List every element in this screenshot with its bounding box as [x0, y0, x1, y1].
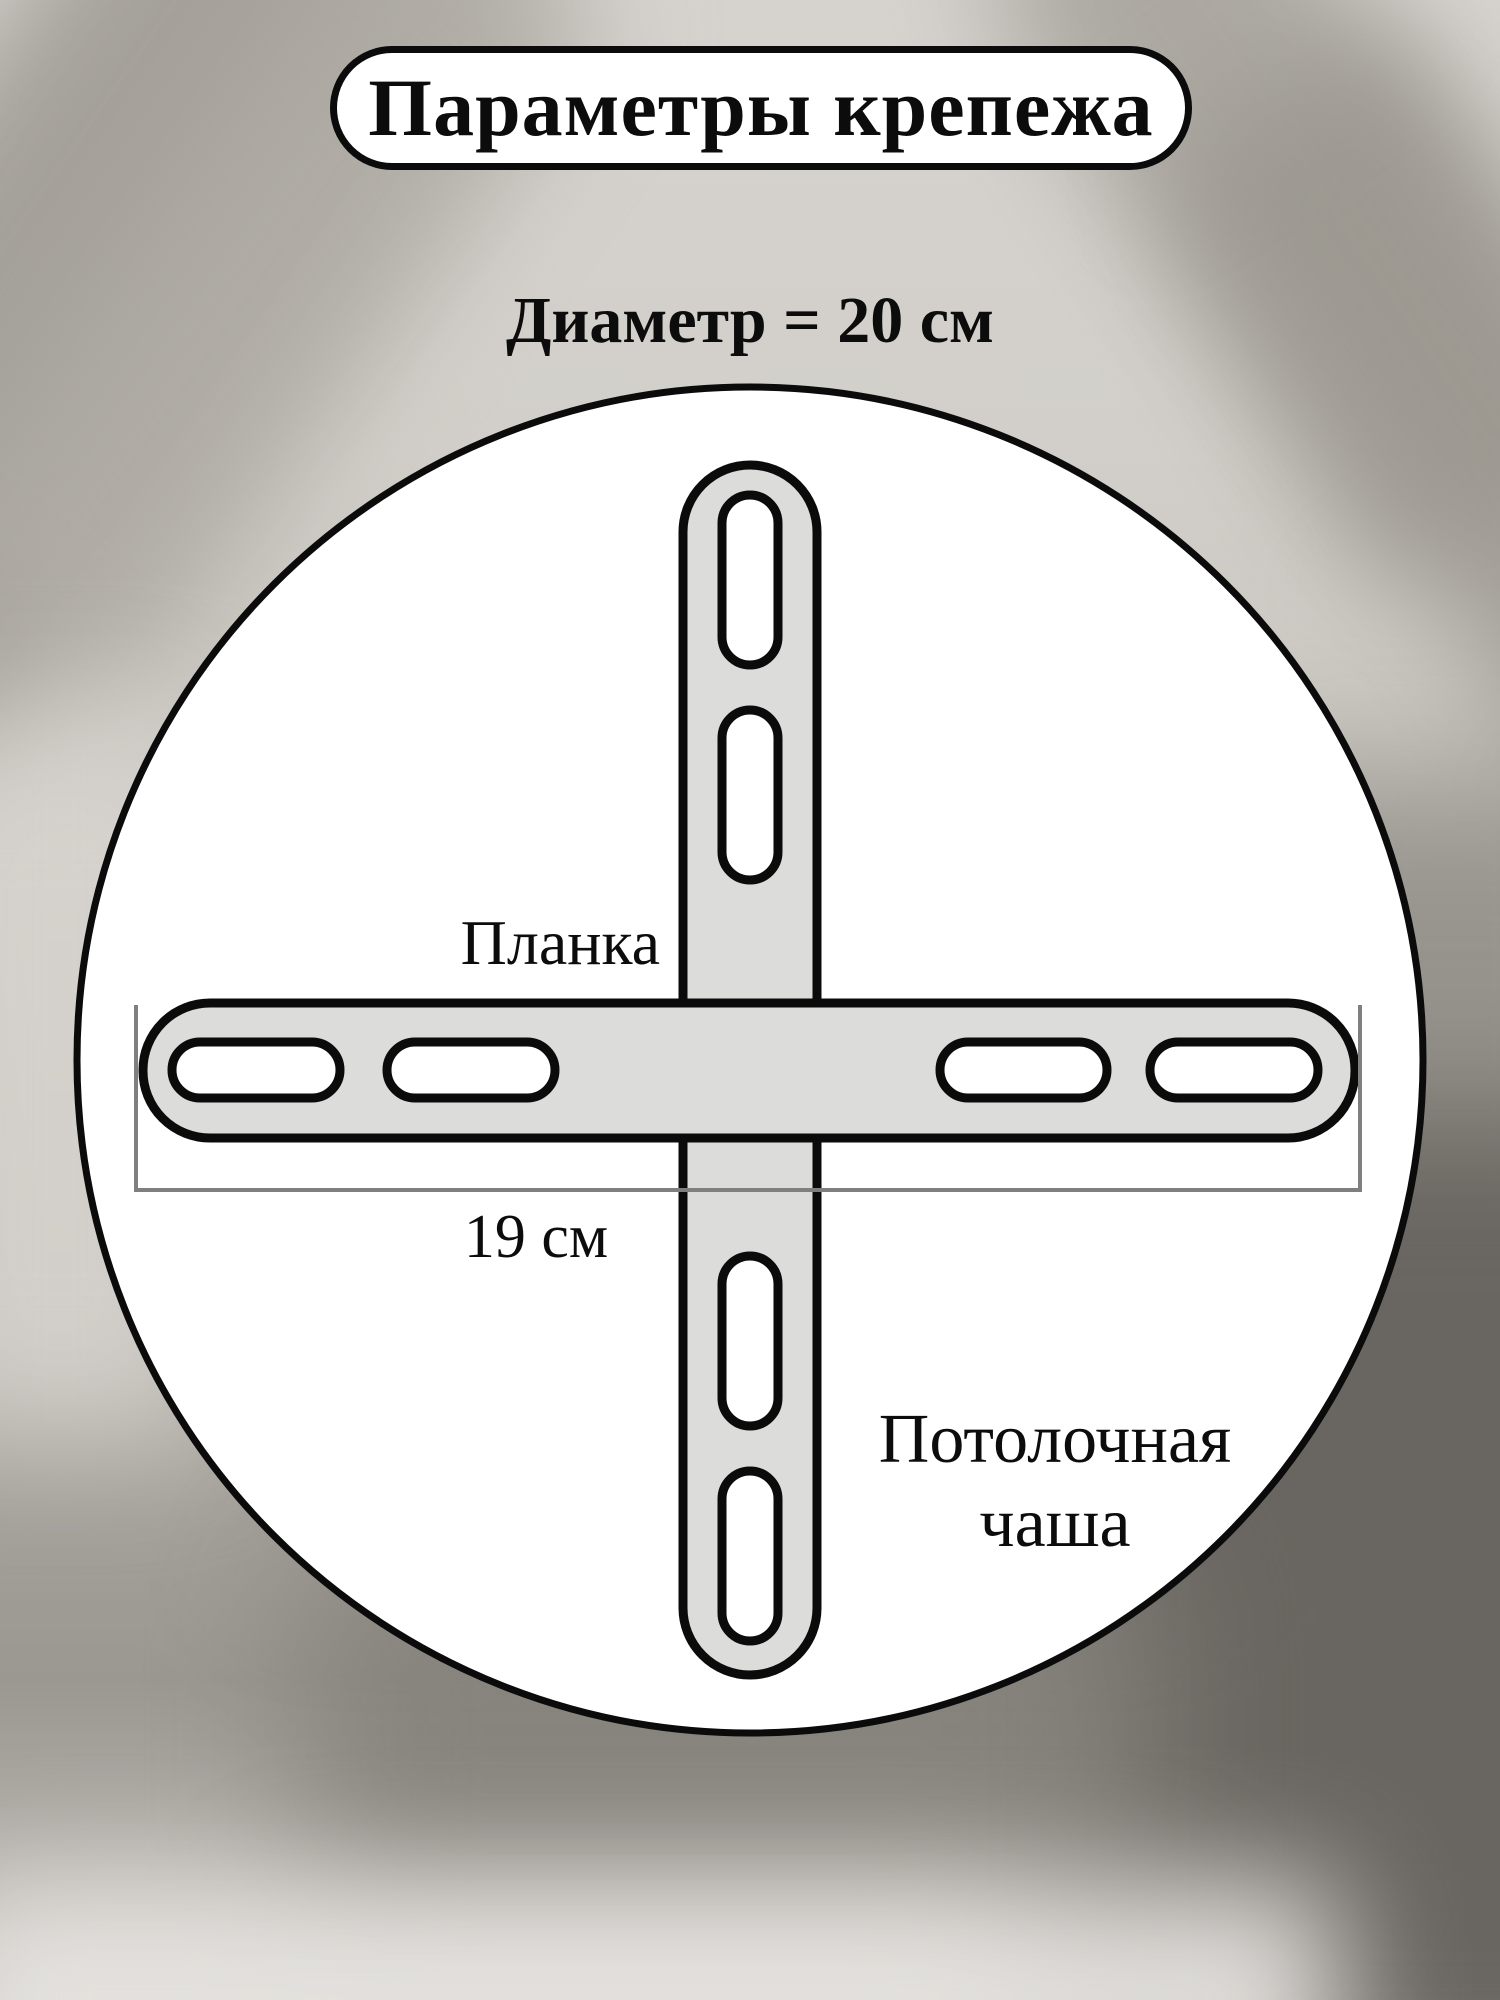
ceiling-cup-label: Потолочная чаша: [845, 1398, 1265, 1566]
length-label: 19 см: [386, 1202, 686, 1273]
slot-hole-top-1: [722, 495, 778, 665]
diameter-label: Диаметр = 20 см: [250, 283, 1250, 359]
slot-hole-left-2: [387, 1042, 555, 1098]
slot-hole-left-1: [172, 1042, 340, 1098]
mount-parameters-infographic: Параметры крепежа Диаметр = 20 см Планка…: [0, 0, 1500, 2000]
slot-hole-right-1: [940, 1042, 1107, 1098]
bar-label: Планка: [300, 906, 660, 980]
title-box: Параметры крепежа: [330, 46, 1192, 170]
slot-hole-bottom-1: [722, 1256, 778, 1426]
slot-hole-top-2: [722, 710, 778, 880]
slot-hole-bottom-2: [722, 1471, 778, 1641]
slot-hole-right-2: [1150, 1042, 1318, 1098]
page-title: Параметры крепежа: [368, 61, 1153, 155]
